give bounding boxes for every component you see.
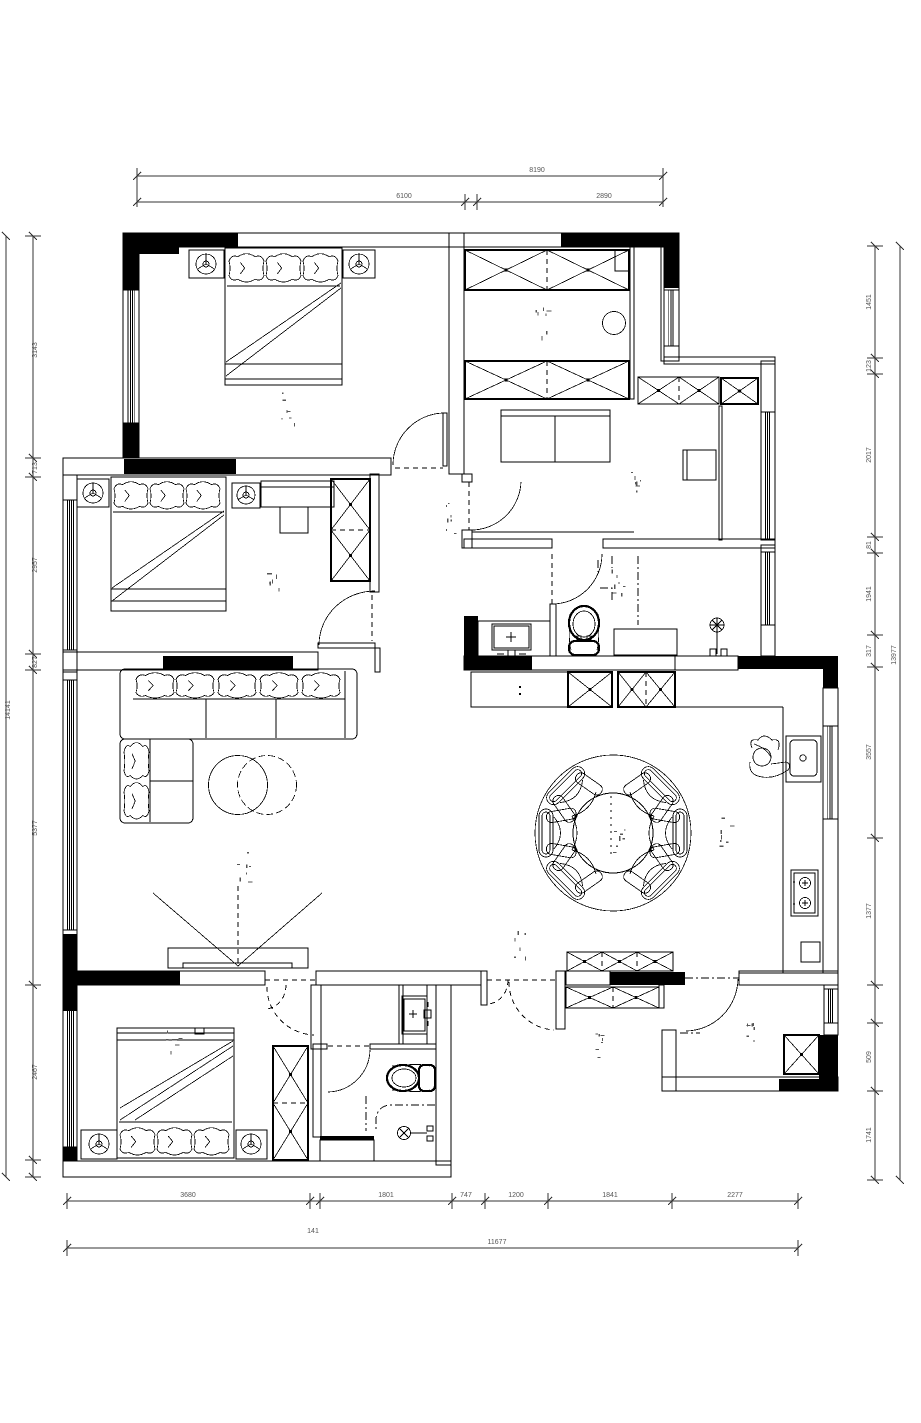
svg-text:2890: 2890 (596, 193, 612, 200)
svg-text:5377: 5377 (32, 820, 39, 836)
svg-text:827: 827 (32, 656, 39, 668)
svg-text:123: 123 (866, 360, 873, 372)
svg-text:3143: 3143 (32, 342, 39, 358)
svg-text:2467: 2467 (32, 1064, 39, 1080)
svg-text:1801: 1801 (378, 1192, 394, 1199)
svg-text:713: 713 (32, 462, 39, 474)
svg-text:509: 509 (866, 1051, 873, 1063)
svg-text:1377: 1377 (866, 903, 873, 919)
svg-text:1741: 1741 (866, 1127, 873, 1143)
svg-text:141: 141 (307, 1228, 319, 1235)
svg-text:13977: 13977 (891, 645, 898, 665)
svg-text:1451: 1451 (866, 294, 873, 310)
svg-text:1941: 1941 (866, 586, 873, 602)
svg-text:3680: 3680 (180, 1192, 196, 1199)
svg-text:11677: 11677 (488, 1239, 507, 1246)
svg-text:8190: 8190 (529, 167, 545, 174)
svg-text:1200: 1200 (508, 1192, 524, 1199)
svg-text:14141: 14141 (5, 700, 12, 720)
svg-text:2957: 2957 (32, 557, 39, 573)
svg-text:81: 81 (866, 541, 873, 549)
svg-text:3557: 3557 (866, 744, 873, 760)
svg-text:747: 747 (460, 1192, 472, 1199)
svg-text:2277: 2277 (727, 1192, 743, 1199)
svg-text:6100: 6100 (396, 193, 412, 200)
svg-text:1841: 1841 (602, 1192, 618, 1199)
svg-text:317: 317 (866, 645, 873, 657)
svg-text:2017: 2017 (866, 447, 873, 463)
